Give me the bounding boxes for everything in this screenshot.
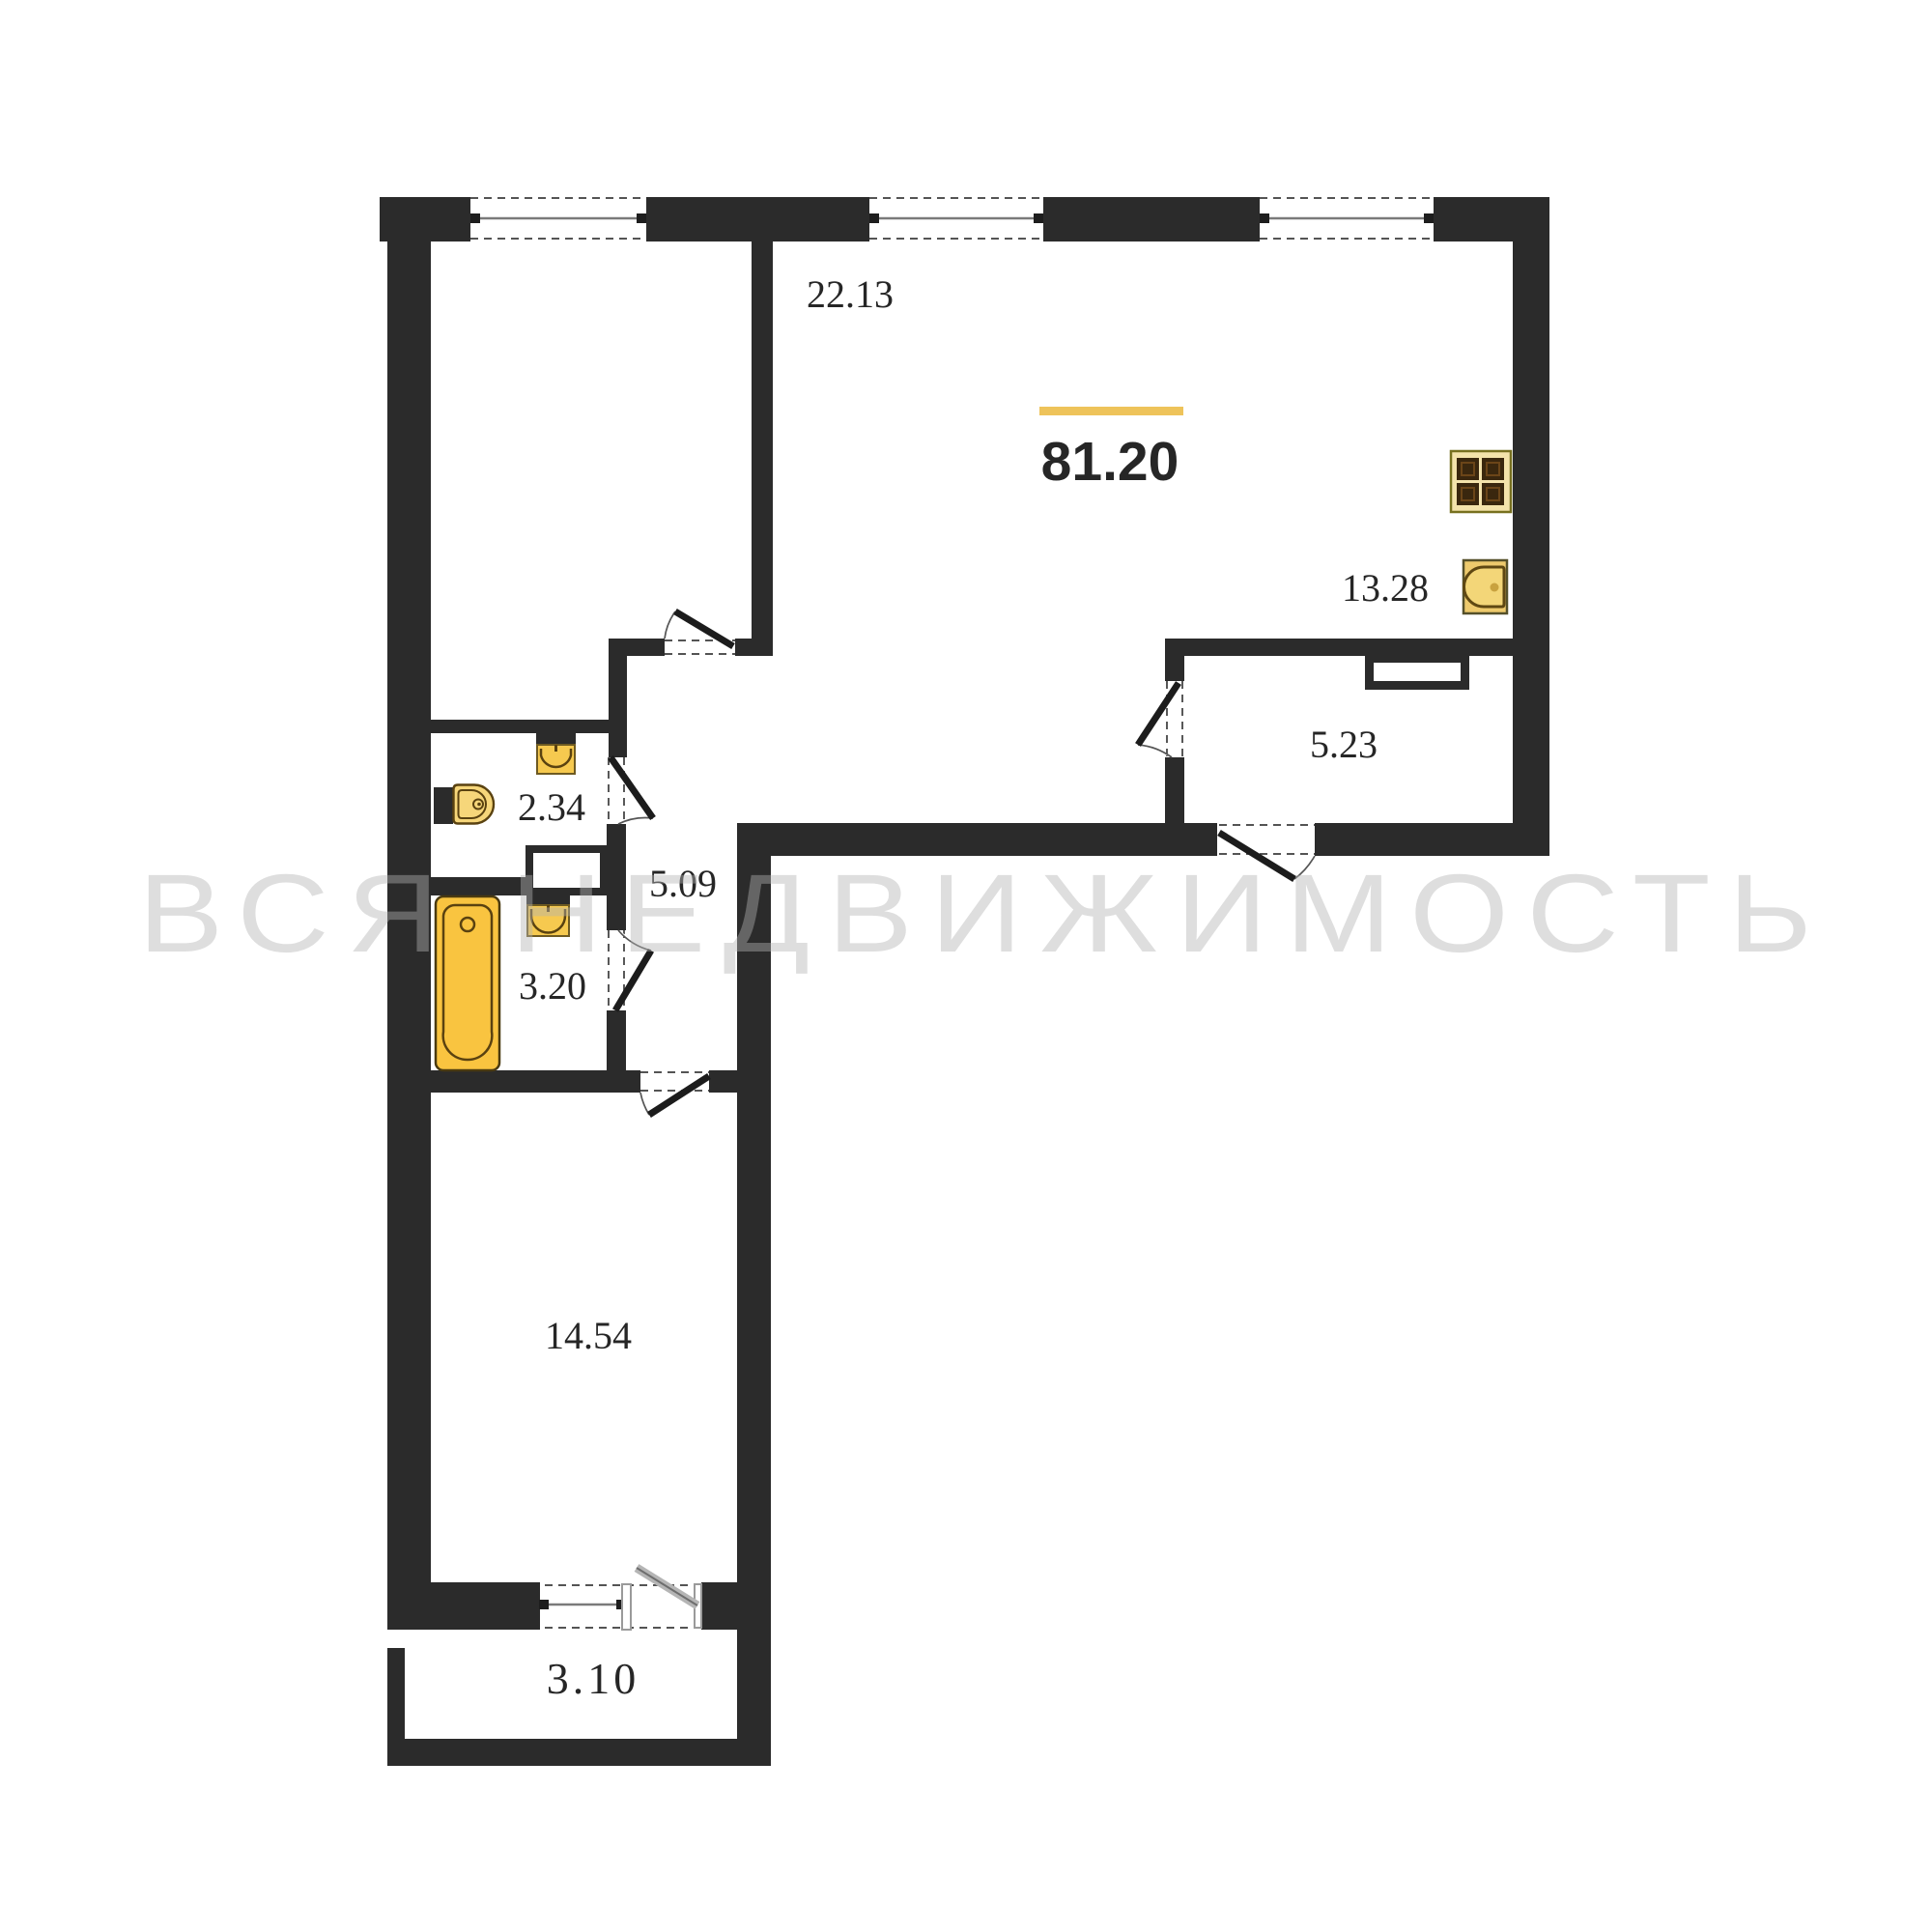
svg-text:ВСЯ НЕДВИЖИМОСТЬ: ВСЯ НЕДВИЖИМОСТЬ <box>138 852 1830 976</box>
svg-text:14.54: 14.54 <box>545 1314 632 1357</box>
svg-text:22.13: 22.13 <box>807 272 894 316</box>
svg-text:13.28: 13.28 <box>1342 566 1429 610</box>
svg-text:81.20: 81.20 <box>1041 431 1179 493</box>
svg-text:5.23: 5.23 <box>1310 723 1378 766</box>
svg-text:3.10: 3.10 <box>547 1654 640 1703</box>
svg-text:2.34: 2.34 <box>518 785 585 829</box>
